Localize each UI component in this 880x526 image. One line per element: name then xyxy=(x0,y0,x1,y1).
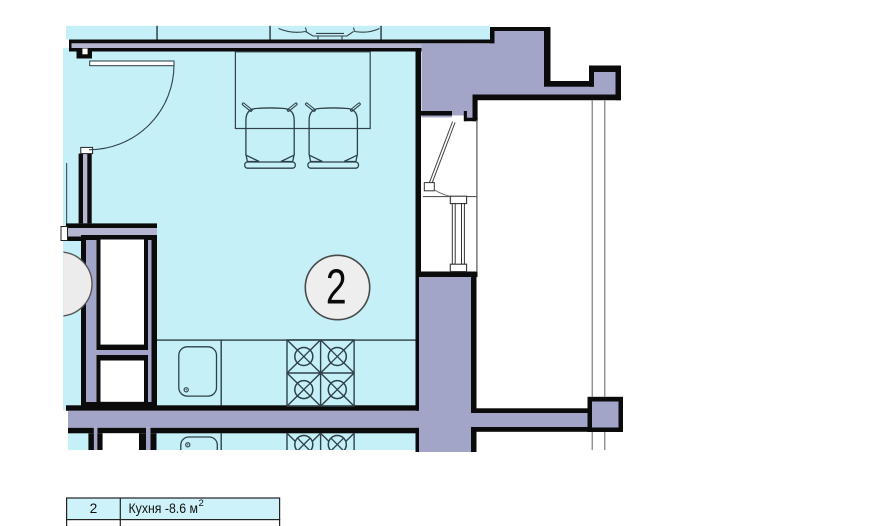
svg-text:2: 2 xyxy=(90,501,98,516)
svg-text:2: 2 xyxy=(326,261,347,315)
svg-text:Кухня -8.6 м: Кухня -8.6 м xyxy=(129,500,198,516)
svg-text:2: 2 xyxy=(199,498,204,509)
